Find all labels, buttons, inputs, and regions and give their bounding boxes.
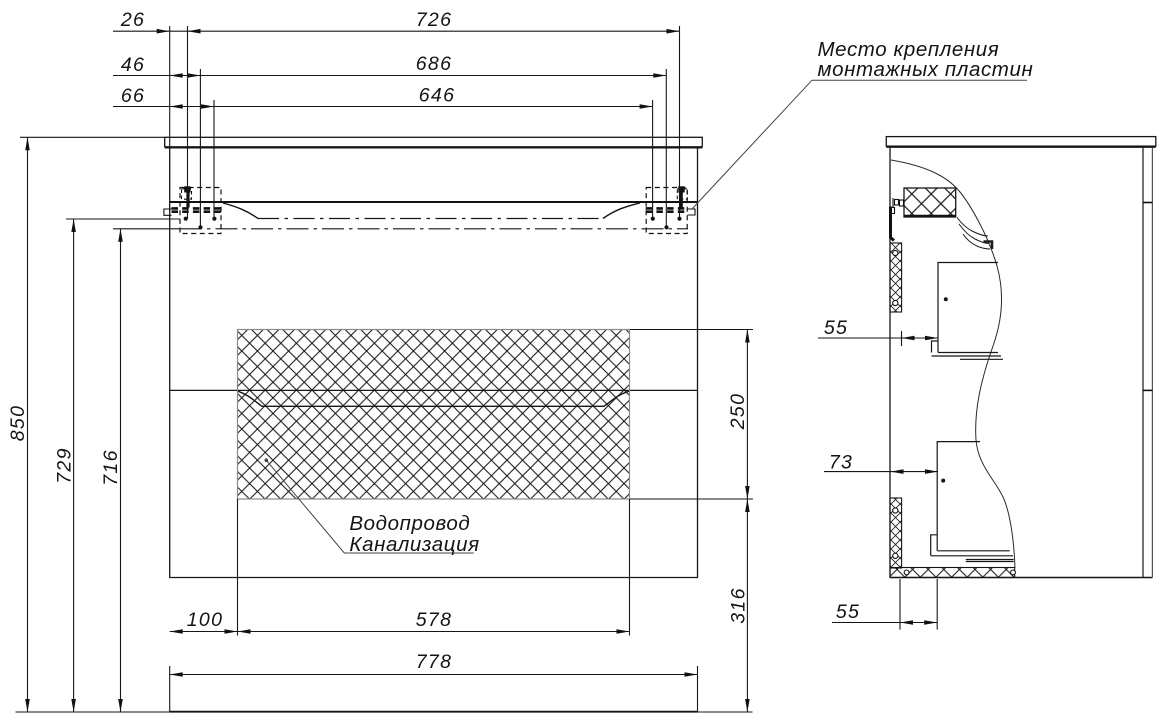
svg-text:монтажных пластин: монтажных пластин xyxy=(818,58,1034,81)
svg-text:729: 729 xyxy=(54,447,76,483)
svg-text:578: 578 xyxy=(416,609,452,631)
svg-text:250: 250 xyxy=(727,393,749,430)
svg-text:726: 726 xyxy=(416,9,452,31)
svg-text:73: 73 xyxy=(829,452,853,474)
svg-text:55: 55 xyxy=(836,601,860,623)
svg-text:Водопровод: Водопровод xyxy=(349,512,470,535)
svg-text:55: 55 xyxy=(824,317,848,339)
svg-text:716: 716 xyxy=(100,449,122,485)
svg-text:100: 100 xyxy=(187,609,223,631)
svg-text:46: 46 xyxy=(121,54,145,76)
svg-text:66: 66 xyxy=(121,85,145,107)
svg-text:Канализация: Канализация xyxy=(349,533,479,556)
svg-text:686: 686 xyxy=(416,53,452,75)
svg-text:316: 316 xyxy=(728,587,750,623)
svg-text:646: 646 xyxy=(419,85,455,107)
svg-text:778: 778 xyxy=(416,651,452,673)
svg-text:26: 26 xyxy=(120,9,145,31)
svg-text:850: 850 xyxy=(7,405,29,441)
